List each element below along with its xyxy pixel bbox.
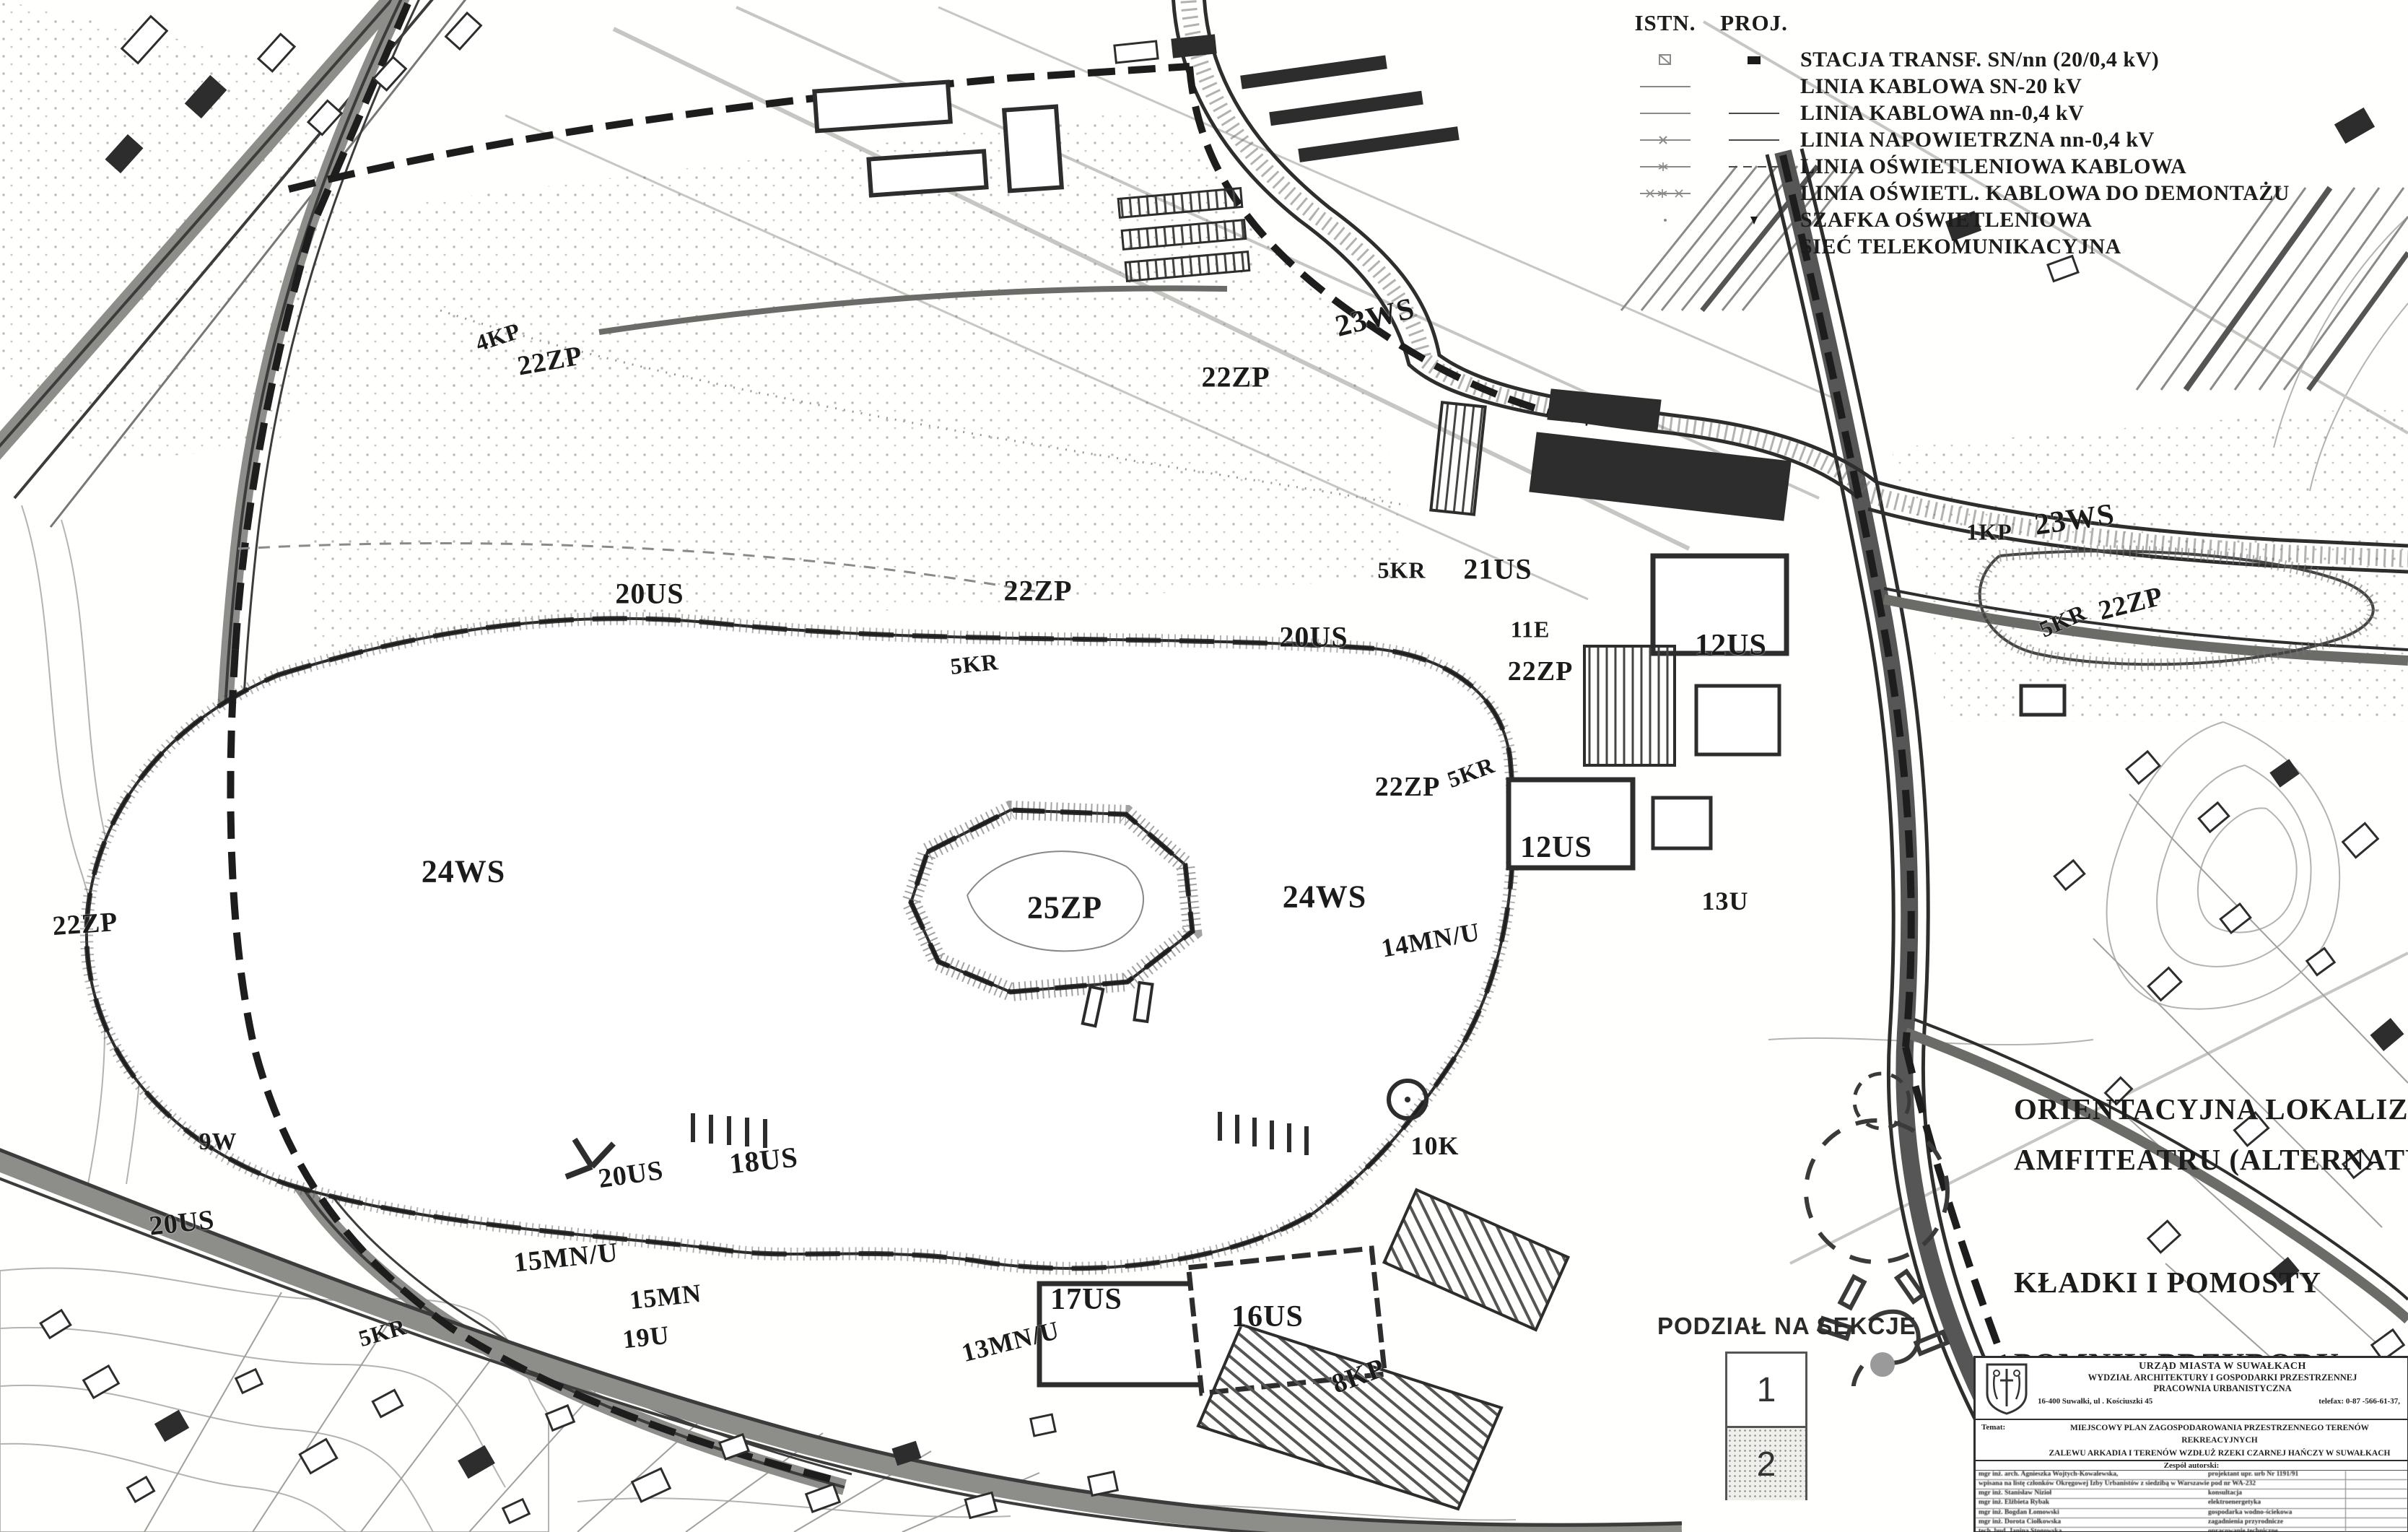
zone-label: 12US bbox=[1695, 628, 1767, 663]
legend-item: LINIA OŚWIETL. KABLOWA DO DEMONTAŻU bbox=[1623, 180, 2402, 206]
author-name: mgr inż. arch. Agnieszka Wojtych-Kowalew… bbox=[1976, 1471, 2208, 1479]
cable-nn-existing-icon bbox=[1623, 105, 1708, 121]
zone-label: 24WS bbox=[1283, 879, 1366, 915]
subject-line1: MIEJSCOWY PLAN ZAGOSPODAROWANIA PRZESTRZ… bbox=[2032, 1422, 2407, 1448]
amphitheater-large-circle-icon bbox=[1806, 1120, 1947, 1262]
zone-label: 11E bbox=[1511, 617, 1550, 643]
zone-label: 16US bbox=[1231, 1300, 1304, 1334]
lighting-line-projected-icon bbox=[1708, 159, 1800, 175]
zone-label: 13U bbox=[1702, 886, 1749, 916]
legend-item-label: SIEĆ TELEKOMUNIKACYJNA bbox=[1800, 235, 2121, 259]
overhead-line-existing-icon bbox=[1623, 132, 1708, 148]
empty-symbol bbox=[1708, 239, 1800, 255]
subject-line2: ZALEWU ARKADIA I TERENÓW WZDŁUŻ RZEKI CZ… bbox=[2032, 1448, 2407, 1460]
author-role: projektant upr. urb Nr 1191/91 bbox=[2208, 1471, 2345, 1479]
title-block: URZĄD MIASTA W SUWAŁKACH WYDZIAŁ ARCHITE… bbox=[1973, 1356, 2408, 1532]
office-line1: URZĄD MIASTA W SUWAŁKACH bbox=[2038, 1361, 2407, 1372]
author-name: mgr inż. Stanisław Nizioł bbox=[1976, 1489, 2208, 1498]
legend-item: LINIA KABLOWA nn-0,4 kV bbox=[1623, 100, 2402, 126]
cable-sn-existing-icon bbox=[1623, 79, 1708, 95]
author-role: gospodarka wodno-ściekowa bbox=[2208, 1509, 2345, 1518]
author-role: opracowanie techniczne bbox=[2208, 1528, 2345, 1532]
subject-row: Temat: MIEJSCOWY PLAN ZAGOSPODAROWANIA P… bbox=[1976, 1420, 2407, 1461]
author-row: tech. bud. Janina Stogowska opracowanie … bbox=[1976, 1528, 2407, 1532]
city-crest bbox=[1976, 1358, 2038, 1419]
nature-monument-icon bbox=[1867, 1349, 1898, 1380]
office-heading: URZĄD MIASTA W SUWAŁKACH WYDZIAŁ ARCHITE… bbox=[2038, 1358, 2407, 1419]
zone-label: 5KR bbox=[1378, 557, 1426, 584]
zone-label: 20US bbox=[615, 577, 684, 611]
zone-label: 20US bbox=[148, 1204, 217, 1242]
author-role: konsultacja bbox=[2208, 1489, 2345, 1498]
team-header: Zespół autorski: bbox=[1976, 1461, 2407, 1471]
amphitheater-legend-line2: AMFITEATRU (ALTERNATYWA) bbox=[2014, 1142, 2408, 1177]
legend-item-label: SZAFKA OŚWIETLENIOWA bbox=[1800, 208, 2092, 232]
signature-cell bbox=[2345, 1499, 2407, 1507]
lighting-cabinet-projected-icon bbox=[1708, 212, 1800, 228]
lighting-cabinet-existing-icon bbox=[1623, 212, 1708, 228]
author-row: mgr inż. Elżbieta Rybak elektroenergetyk… bbox=[1976, 1499, 2407, 1508]
bridges-legend-label: KŁADKI I POMOSTY bbox=[2014, 1265, 2321, 1300]
legend-item-label: LINIA NAPOWIETRZNA nn-0,4 kV bbox=[1800, 128, 2155, 152]
zone-label: 10K bbox=[1410, 1131, 1459, 1161]
section-2-cell: 2 bbox=[1727, 1428, 1805, 1500]
author-row: wpisana na listę członków Okręgowej Izby… bbox=[1976, 1480, 2407, 1489]
legend-item-label: LINIA OŚWIETLENIOWA KABLOWA bbox=[1800, 154, 2186, 179]
legend-item-label: LINIA OŚWIETL. KABLOWA DO DEMONTAŻU bbox=[1800, 181, 2290, 206]
signature-cell bbox=[2345, 1528, 2407, 1532]
zone-label: 17US bbox=[1050, 1282, 1122, 1317]
author-name: wpisana na listę członków Okręgowej Izby… bbox=[1976, 1480, 2345, 1489]
utilities-legend: ISTN. PROJ. STACJA TRANSF. SN/nn (20/0,4… bbox=[1623, 10, 2402, 260]
author-row: mgr inż. Stanisław Nizioł konsultacja bbox=[1976, 1489, 2407, 1499]
zone-label: 22ZP bbox=[1201, 360, 1270, 394]
signature-cell bbox=[2345, 1489, 2407, 1498]
legend-item: SIEĆ TELEKOMUNIKACYJNA bbox=[1623, 233, 2402, 260]
legend-col-proj: PROJ. bbox=[1708, 10, 1800, 36]
author-role: zagadnienia przyrodnicze bbox=[2208, 1518, 2345, 1527]
legend-item: STACJA TRANSF. SN/nn (20/0,4 kV) bbox=[1623, 46, 2402, 73]
legend-item: SZAFKA OŚWIETLENIOWA bbox=[1623, 206, 2402, 233]
sections-diagram: 1 2 bbox=[1725, 1352, 1807, 1500]
zone-label: 18US bbox=[728, 1140, 800, 1181]
zone-label: 25ZP bbox=[1027, 889, 1102, 926]
empty-symbol bbox=[1708, 186, 1800, 201]
signature-cell bbox=[2345, 1509, 2407, 1518]
zone-label: 22ZP bbox=[1003, 574, 1072, 608]
zone-label: 12US bbox=[1520, 830, 1592, 865]
legend-item: LINIA OŚWIETLENIOWA KABLOWA bbox=[1623, 153, 2402, 180]
plan-map-sheet: 4KP 22ZP 23WS 22ZP 20US 22ZP 5KR 20US 5K… bbox=[0, 0, 2408, 1532]
sections-title: PODZIAŁ NA SEKCJE bbox=[1657, 1313, 1916, 1340]
author-name: mgr inż. Bogdan Łomowski bbox=[1976, 1509, 2208, 1518]
office-telefax: telefax: 0-87 -566-61-37, bbox=[2318, 1397, 2400, 1406]
signature-cell bbox=[2345, 1471, 2407, 1479]
zone-label: 22ZP bbox=[1375, 771, 1441, 803]
zone-label: 9W bbox=[199, 1128, 237, 1156]
overhead-line-projected-icon bbox=[1708, 132, 1800, 148]
subject-label: Temat: bbox=[1976, 1420, 2032, 1460]
author-name: mgr inż. Dorota Ciołkowska bbox=[1976, 1518, 2208, 1527]
author-name: mgr inż. Elżbieta Rybak bbox=[1976, 1499, 2208, 1507]
legend-item: LINIA NAPOWIETRZNA nn-0,4 kV bbox=[1623, 126, 2402, 153]
office-line3: PRACOWNIA URBANISTYCZNA bbox=[2038, 1383, 2407, 1394]
transformer-projected-icon bbox=[1708, 52, 1800, 68]
amphitheater-legend-line1: ORIENTACYJNA LOKALIZACJA bbox=[2014, 1092, 2408, 1126]
office-line2: WYDZIAŁ ARCHITEKTURY I GOSPODARKI PRZEST… bbox=[2038, 1372, 2407, 1383]
legend-item-label: LINIA KABLOWA SN-20 kV bbox=[1800, 74, 2082, 99]
legend-item-label: STACJA TRANSF. SN/nn (20/0,4 kV) bbox=[1800, 48, 2159, 72]
transformer-existing-icon bbox=[1623, 52, 1708, 68]
zone-label: 21US bbox=[1463, 552, 1532, 586]
title-block-header: URZĄD MIASTA W SUWAŁKACH WYDZIAŁ ARCHITE… bbox=[1976, 1358, 2407, 1420]
zone-label: 19U bbox=[621, 1320, 671, 1355]
author-role: elektroenergetyka bbox=[2208, 1499, 2345, 1507]
author-row: mgr inż. Dorota Ciołkowska zagadnienia p… bbox=[1976, 1518, 2407, 1528]
zone-label: 22ZP bbox=[51, 906, 118, 942]
author-row: mgr inż. Bogdan Łomowski gospodarka wodn… bbox=[1976, 1509, 2407, 1518]
zone-label: 22ZP bbox=[1508, 656, 1574, 687]
zone-label: 24WS bbox=[422, 853, 505, 890]
empty-symbol bbox=[1623, 239, 1708, 255]
legend-col-istn: ISTN. bbox=[1623, 10, 1708, 36]
cable-nn-projected-icon bbox=[1708, 105, 1800, 121]
legend-item: LINIA KABLOWA SN-20 kV bbox=[1623, 73, 2402, 100]
author-row: mgr inż. arch. Agnieszka Wojtych-Kowalew… bbox=[1976, 1471, 2407, 1480]
zone-label: 1KP bbox=[1966, 519, 2012, 546]
cable-sn-projected-icon bbox=[1708, 79, 1800, 95]
signature-cell bbox=[2345, 1480, 2407, 1489]
signature-cell bbox=[2345, 1518, 2407, 1527]
zone-label: 5KR bbox=[949, 648, 1000, 680]
legend-item-label: LINIA KABLOWA nn-0,4 kV bbox=[1800, 101, 2084, 126]
author-name: tech. bud. Janina Stogowska bbox=[1976, 1528, 2208, 1532]
office-address: 16-400 Suwałki, ul . Kościuszki 45 bbox=[2038, 1397, 2152, 1406]
lighting-line-existing-icon bbox=[1623, 159, 1708, 175]
zone-label: 20US bbox=[1279, 620, 1348, 654]
lighting-line-demolition-icon bbox=[1623, 186, 1708, 201]
section-1-cell: 1 bbox=[1727, 1354, 1805, 1428]
